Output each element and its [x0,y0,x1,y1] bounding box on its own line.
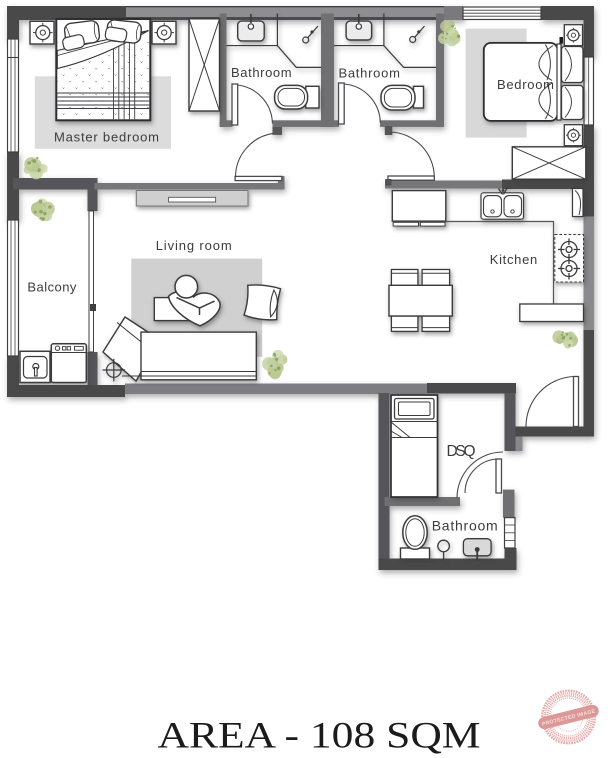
svg-text:DSQ: DSQ [447,443,476,460]
svg-text:Bathroom: Bathroom [432,518,498,534]
svg-text:Bathroom: Bathroom [338,66,400,81]
svg-text:Bedroom: Bedroom [497,77,554,92]
svg-text:Bathroom: Bathroom [231,65,292,80]
svg-text:Living room: Living room [156,238,232,253]
svg-text:Kitchen: Kitchen [490,252,538,267]
svg-text:AREA - 108 SQM: AREA - 108 SQM [158,715,481,756]
svg-text:Balcony: Balcony [27,280,77,295]
svg-text:Master bedroom: Master bedroom [54,130,159,145]
